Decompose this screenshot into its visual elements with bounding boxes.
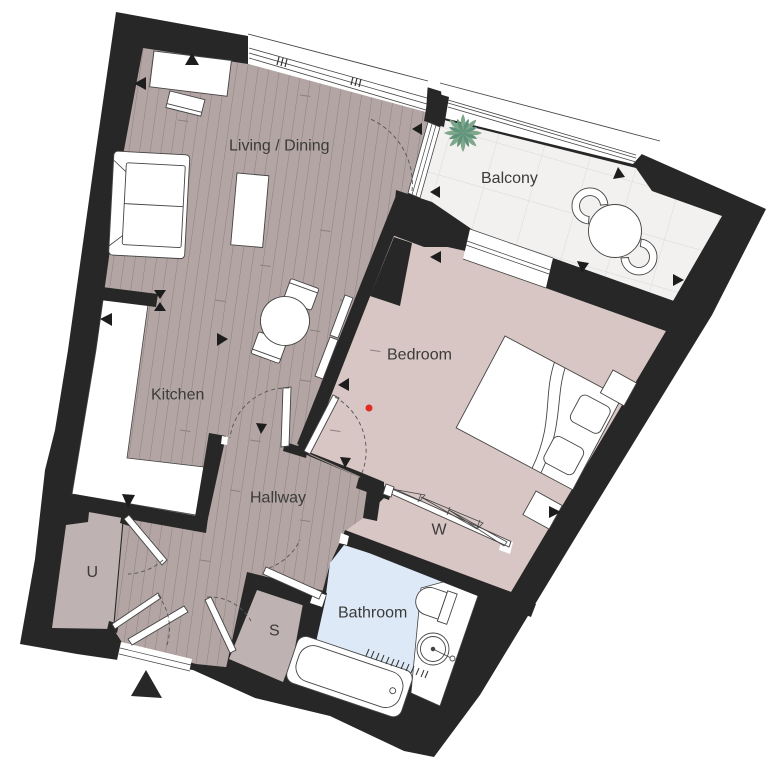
svg-text:Balcony: Balcony [481,170,538,187]
svg-text:Bathroom: Bathroom [338,605,407,622]
svg-text:Living / Dining: Living / Dining [229,138,330,155]
svg-text:U: U [87,564,99,581]
svg-text:Kitchen: Kitchen [151,387,204,404]
svg-text:W: W [432,522,448,539]
svg-text:S: S [269,623,280,640]
svg-text:Hallway: Hallway [250,490,306,507]
svg-text:Bedroom: Bedroom [387,347,452,364]
